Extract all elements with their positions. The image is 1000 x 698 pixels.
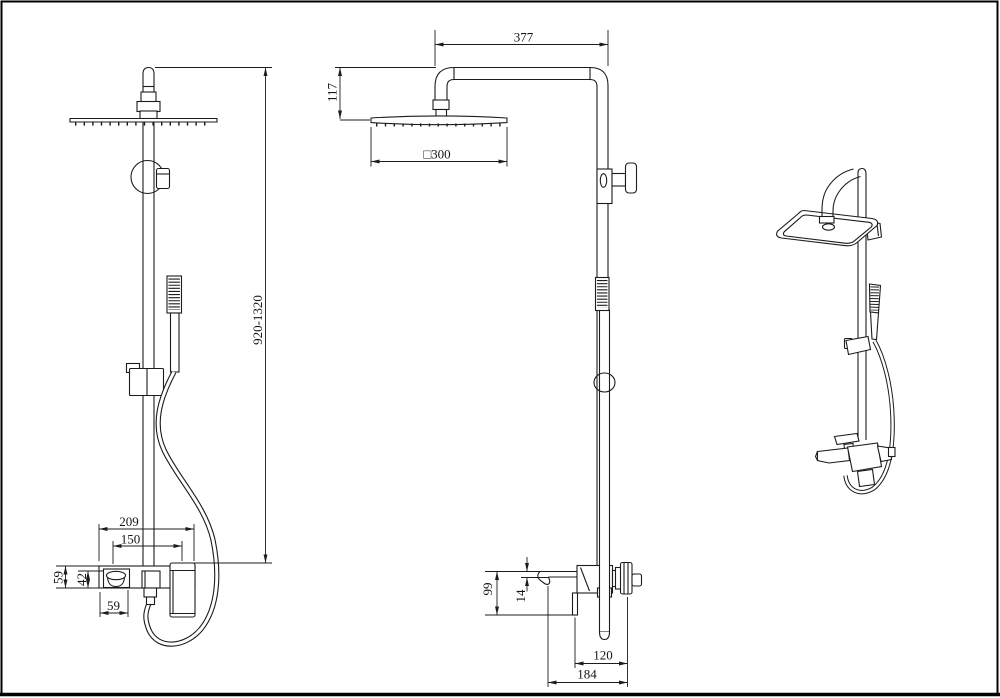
- dim-ext-lines: [520, 572, 549, 578]
- persp-diverter-knob: [889, 448, 896, 457]
- connector-nut: [140, 111, 157, 119]
- dim-overall-depth: 184: [548, 586, 628, 687]
- head-plate-side: [371, 116, 507, 125]
- arm-nut: [433, 100, 449, 110]
- drawing-sheet: 920-1320 209 150 59 42 59: [0, 0, 1000, 698]
- bracket-clip: [157, 169, 170, 189]
- connector-mid: [137, 102, 160, 112]
- dim-label: 150: [121, 532, 141, 547]
- head-plate: [70, 119, 217, 123]
- side-mixer: [538, 563, 642, 616]
- dim-label: 120: [593, 648, 613, 663]
- persp-pole: [858, 169, 866, 441]
- dim-spout-thickness: 14: [513, 557, 549, 603]
- dim-label: 920-1320: [250, 295, 265, 345]
- wand-handle-side: [600, 310, 610, 632]
- dim-label: □300: [423, 147, 450, 162]
- mixer-tail-plate: [573, 593, 578, 615]
- side-wall-bracket: [597, 163, 637, 204]
- dim-head-drop: 117: [325, 68, 437, 121]
- dim-ext-lines: [485, 572, 573, 616]
- dim-arm-reach: 377: [435, 30, 608, 67]
- persp-spout: [818, 448, 850, 463]
- pole-outline: [143, 68, 154, 567]
- connector-upper: [141, 92, 156, 102]
- persp-body: [848, 443, 882, 472]
- persp-arm-nut: [820, 217, 835, 224]
- dim-label: 209: [119, 514, 139, 529]
- pipe-joints: [597, 204, 608, 279]
- dim-ext-lines: [335, 68, 436, 121]
- perspective-view: [777, 169, 895, 493]
- pipe-elbow-seams: [454, 68, 590, 80]
- mixer-spout-side: [540, 572, 577, 578]
- persp-arm-inner: [833, 177, 861, 220]
- hand-shower-handle: [171, 313, 180, 372]
- dim-head-size: □300: [371, 127, 507, 167]
- dim-label: 42: [74, 573, 89, 586]
- persp-tail: [858, 470, 875, 487]
- front-slider-holder: [127, 364, 164, 396]
- front-wall-bracket: [131, 161, 170, 194]
- bracket-knob: [626, 163, 637, 193]
- handle-cap: [632, 574, 642, 586]
- dim-spout-width: 59: [100, 590, 128, 617]
- pipe-outer: [435, 68, 608, 567]
- dim-label: 14: [513, 589, 528, 603]
- bracket-stem: [612, 174, 626, 187]
- dim-label: 59: [51, 571, 66, 584]
- dim-label: 117: [325, 82, 340, 102]
- side-overhead-pipe: [433, 68, 608, 567]
- wand-cap: [600, 632, 610, 640]
- handle-disc: [621, 563, 633, 595]
- mixer-handle: [170, 563, 195, 617]
- side-view: [371, 68, 642, 640]
- persp-head-connector: [823, 224, 835, 230]
- hose-nut-lower: [147, 597, 155, 605]
- persp-lever: [835, 434, 860, 445]
- dim-label: 59: [107, 598, 120, 613]
- front-head-connector: [137, 92, 160, 119]
- front-riser-pole: [143, 68, 154, 567]
- mixer-spout-tip: [538, 572, 550, 585]
- dim-label: 184: [577, 667, 597, 682]
- dim-label: 377: [514, 30, 534, 45]
- front-hand-shower: [167, 276, 182, 372]
- persp-wand-hatch: [874, 287, 875, 311]
- hose-nut-upper: [144, 588, 157, 597]
- dim-label: 99: [480, 583, 495, 596]
- persp-wand-handle: [871, 312, 879, 340]
- side-shower-head: [371, 116, 507, 125]
- drawing-canvas: 920-1320 209 150 59 42 59: [0, 0, 1000, 698]
- pipe-inner: [447, 80, 597, 567]
- front-view: [70, 68, 217, 645]
- dim-hole-spacing: 150: [113, 532, 182, 565]
